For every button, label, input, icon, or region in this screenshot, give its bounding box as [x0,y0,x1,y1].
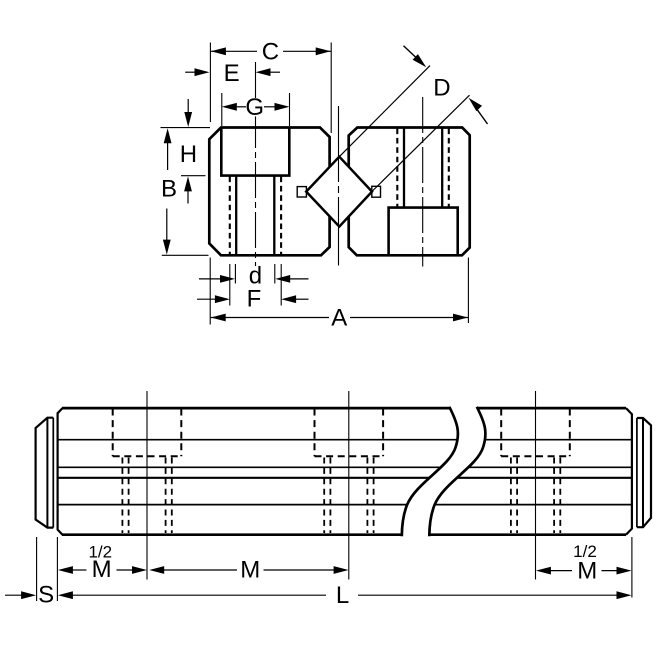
svg-text:S: S [38,581,54,608]
svg-text:M: M [577,557,597,584]
svg-text:C: C [262,39,279,66]
svg-text:D: D [433,75,450,102]
svg-text:M: M [240,557,260,584]
svg-text:A: A [331,305,347,332]
svg-text:G: G [245,94,264,121]
svg-text:H: H [180,141,197,168]
svg-text:L: L [336,582,349,609]
svg-text:F: F [247,285,262,312]
svg-text:E: E [224,60,240,87]
svg-text:B: B [161,175,177,202]
svg-text:M: M [92,556,112,583]
